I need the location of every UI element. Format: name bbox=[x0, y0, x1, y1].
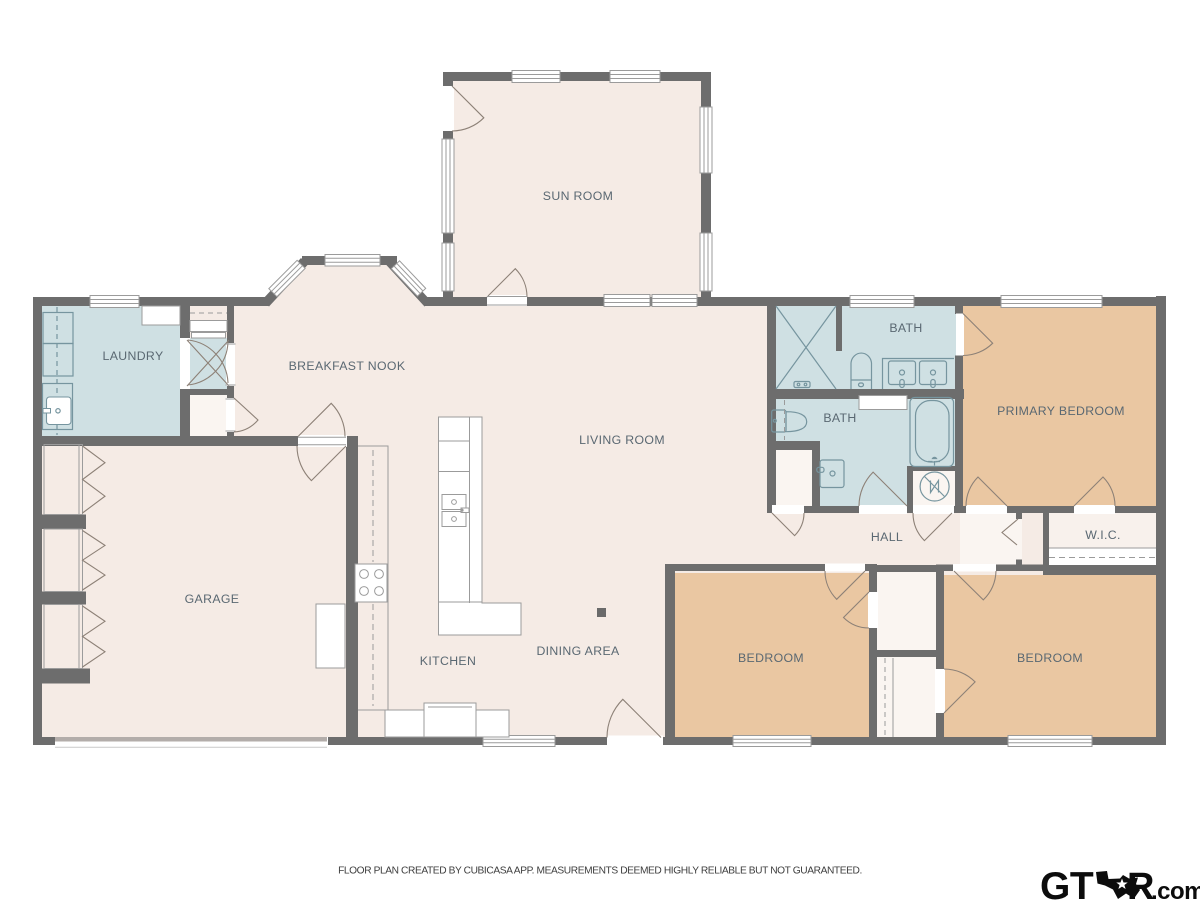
svg-text:SUN ROOM: SUN ROOM bbox=[543, 189, 613, 203]
svg-text:KITCHEN: KITCHEN bbox=[420, 654, 476, 668]
svg-text:DINING AREA: DINING AREA bbox=[536, 644, 620, 658]
svg-text:BEDROOM: BEDROOM bbox=[738, 651, 804, 665]
svg-text:BREAKFAST NOOK: BREAKFAST NOOK bbox=[289, 359, 406, 373]
svg-text:GT: GT bbox=[1040, 865, 1094, 900]
svg-text:PRIMARY BEDROOM: PRIMARY BEDROOM bbox=[997, 404, 1125, 418]
svg-text:FLOOR PLAN CREATED BY CUBICASA: FLOOR PLAN CREATED BY CUBICASA APP. MEAS… bbox=[338, 866, 862, 877]
svg-text:HALL: HALL bbox=[871, 530, 903, 544]
svg-text:LAUNDRY: LAUNDRY bbox=[103, 349, 164, 363]
svg-text:LIVING ROOM: LIVING ROOM bbox=[579, 433, 665, 447]
svg-text:BATH: BATH bbox=[823, 411, 856, 425]
svg-text:BEDROOM: BEDROOM bbox=[1017, 651, 1083, 665]
svg-text:W.I.C.: W.I.C. bbox=[1085, 528, 1121, 542]
svg-text:BATH: BATH bbox=[889, 321, 922, 335]
svg-text:GARAGE: GARAGE bbox=[185, 592, 240, 606]
svg-text:.com: .com bbox=[1151, 878, 1200, 900]
